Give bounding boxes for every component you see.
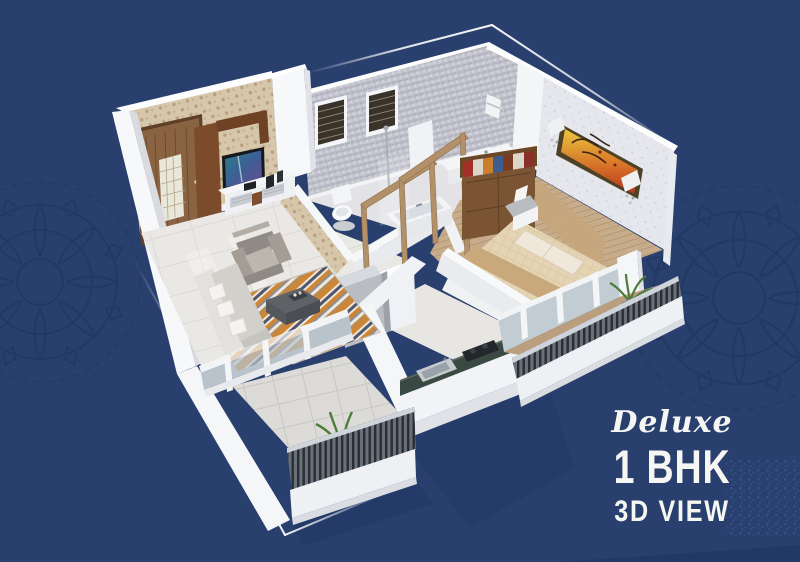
view-type-label: 3D VIEW [605,497,739,527]
door-glass-panel [159,154,184,222]
plan-tier-label: Deluxe [592,406,752,441]
photo-frame [277,170,283,183]
poster: Deluxe 1 BHK 3D VIEW [0,0,800,562]
bathroom-window-2 [366,85,398,137]
bathroom-window-1 [315,95,347,150]
title-block: Deluxe 1 BHK 3D VIEW [592,406,752,527]
plan-type-label: 1 BHK [608,443,736,490]
